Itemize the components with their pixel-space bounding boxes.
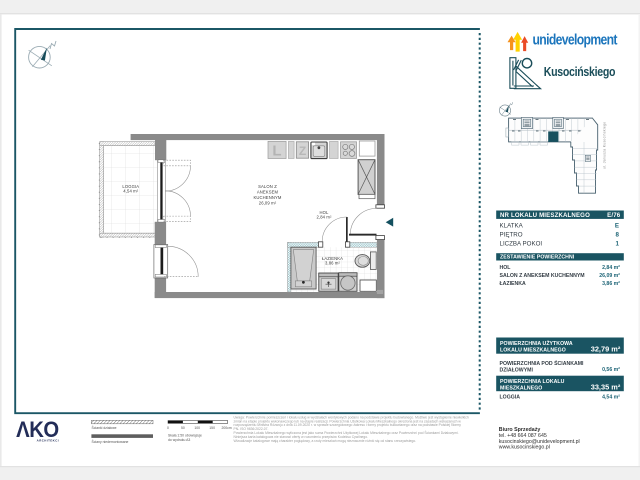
svg-text:DZIAŁOWYMI: DZIAŁOWYMI [500, 368, 534, 374]
svg-text:Skala 1:50 obowiązuje: Skala 1:50 obowiązuje [168, 434, 202, 438]
svg-text:4,54 m²: 4,54 m² [123, 189, 139, 194]
svg-text:50: 50 [181, 426, 185, 430]
svg-text:POWIERZCHNIA POD ŚCIANKAMI: POWIERZCHNIA POD ŚCIANKAMI [500, 360, 585, 367]
svg-text:200cm: 200cm [222, 426, 232, 430]
svg-text:ŁAZIENKA: ŁAZIENKA [500, 281, 526, 287]
svg-text:33,35 m²: 33,35 m² [591, 383, 621, 392]
svg-text:Ścianki działowe: Ścianki działowe [92, 425, 117, 430]
svg-text:HOL: HOL [500, 265, 512, 271]
svg-text:NR LOKALU MIESZKALNEGO: NR LOKALU MIESZKALNEGO [500, 212, 590, 219]
svg-text:26,09 m²: 26,09 m² [259, 200, 277, 205]
svg-text:Kusocińskiego: Kusocińskiego [544, 65, 616, 79]
svg-text:8: 8 [616, 231, 620, 238]
svg-text:Z: Z [299, 144, 306, 158]
svg-text:POWIERZCHNIA LOKALU: POWIERZCHNIA LOKALU [500, 379, 565, 385]
svg-text:2,84 m²: 2,84 m² [602, 265, 620, 271]
svg-text:26,09 m²: 26,09 m² [599, 273, 620, 279]
svg-text:unidevelopment: unidevelopment [533, 32, 619, 48]
svg-text:PIĘTRO: PIĘTRO [500, 231, 523, 238]
svg-text:ZESTAWIENIE POWIERZCHNI: ZESTAWIENIE POWIERZCHNI [500, 255, 575, 261]
svg-text:ul. Janusza Kusocińskiego: ul. Janusza Kusocińskiego [603, 122, 607, 169]
svg-text:LOGGIA: LOGGIA [500, 395, 521, 401]
svg-text:150: 150 [209, 426, 215, 430]
svg-text:KLATKA: KLATKA [500, 222, 524, 229]
svg-text:POWIERZCHNIA UŻYTKOWA: POWIERZCHNIA UŻYTKOWA [500, 340, 573, 347]
svg-text:Biuro Sprzedaży: Biuro Sprzedaży [499, 427, 541, 433]
svg-text:MIESZKALNEGO: MIESZKALNEGO [500, 386, 542, 392]
svg-text:0: 0 [167, 426, 169, 430]
svg-text:4,54 m²: 4,54 m² [602, 395, 620, 401]
svg-text:Ściany niedemontowane: Ściany niedemontowane [92, 439, 129, 444]
svg-text:KUCHENNYM: KUCHENNYM [253, 195, 281, 200]
svg-text:E: E [615, 222, 619, 229]
svg-text:do wydruku A3: do wydruku A3 [168, 438, 190, 442]
svg-text:SALON Z ANEKSEM KUCHENNYM: SALON Z ANEKSEM KUCHENNYM [500, 273, 585, 279]
svg-text:LOKALU MIESZKALNEGO: LOKALU MIESZKALNEGO [500, 348, 566, 354]
svg-text:ANEKSEM: ANEKSEM [257, 190, 279, 195]
svg-text:1: 1 [616, 240, 620, 247]
svg-text:ARCHITEKCI: ARCHITEKCI [37, 438, 59, 442]
svg-text:0,56 m²: 0,56 m² [602, 367, 620, 373]
svg-text:Wizualizacje katalogowe mają c: Wizualizacje katalogowe mają charakter p… [234, 439, 417, 443]
svg-text:2,84 m²: 2,84 m² [316, 214, 332, 219]
svg-text:3,86 m²: 3,86 m² [325, 261, 341, 266]
svg-text:L: L [272, 143, 281, 160]
svg-text:E/76: E/76 [607, 212, 621, 219]
svg-text:100: 100 [194, 426, 200, 430]
svg-text:SALON Z: SALON Z [258, 184, 277, 189]
svg-text:32,79 m²: 32,79 m² [591, 345, 621, 354]
svg-text:LICZBA POKOI: LICZBA POKOI [500, 240, 543, 247]
svg-text:3,86 m²: 3,86 m² [602, 281, 620, 287]
svg-text:www.kusocinskiego.pl: www.kusocinskiego.pl [499, 445, 550, 451]
